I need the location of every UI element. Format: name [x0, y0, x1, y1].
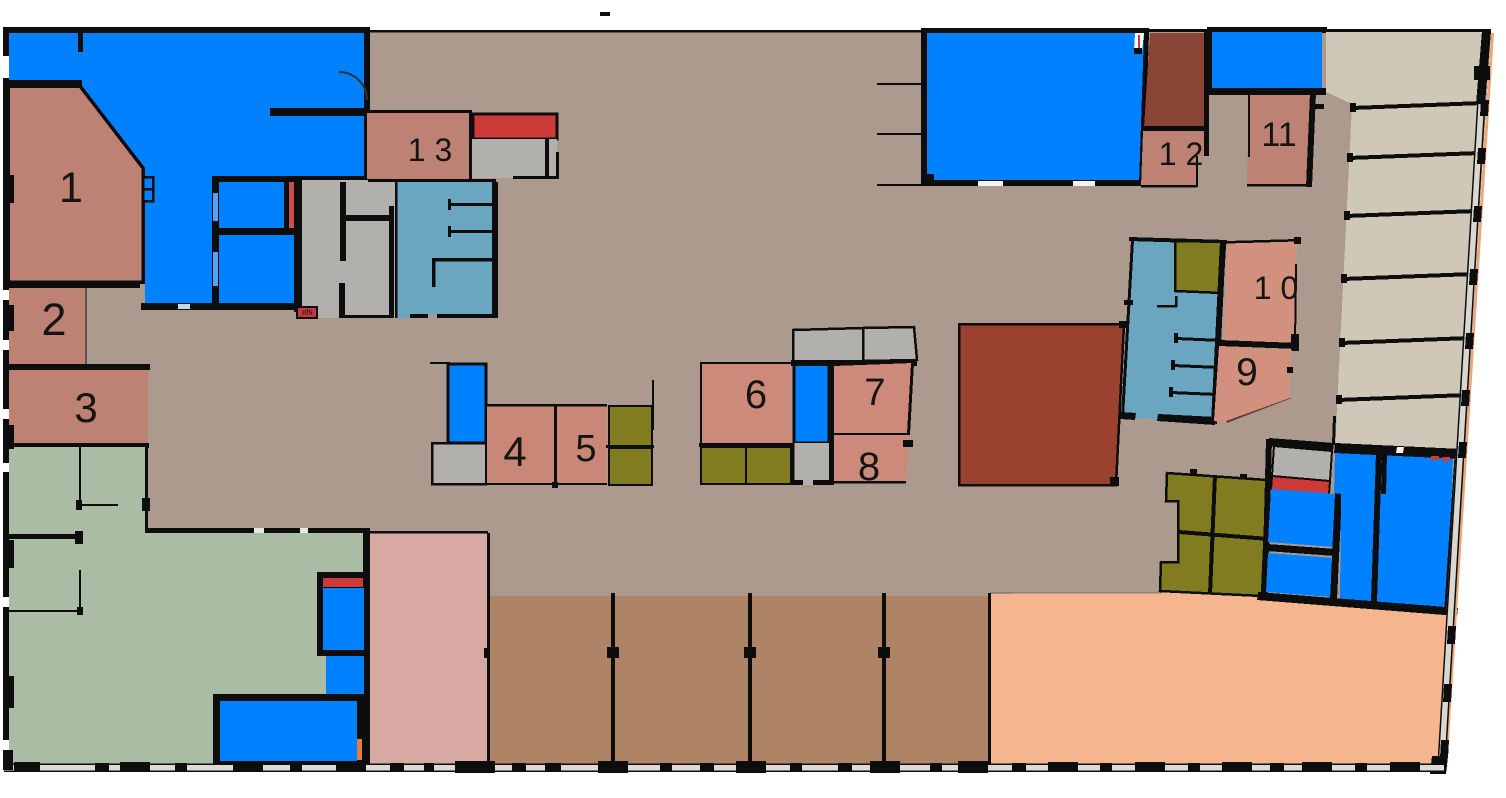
svg-text:1 0: 1 0: [1254, 270, 1298, 306]
svg-text:1: 1: [59, 164, 83, 212]
svg-text:1 3: 1 3: [408, 132, 452, 168]
svg-text:8: 8: [858, 445, 880, 489]
svg-text:11: 11: [1261, 116, 1296, 154]
svg-text:3: 3: [74, 384, 97, 431]
svg-text:spr: spr: [301, 308, 312, 317]
svg-text:4: 4: [503, 428, 526, 475]
svg-text:2: 2: [41, 294, 66, 345]
svg-text:6: 6: [745, 373, 767, 417]
svg-text:7: 7: [864, 372, 885, 414]
svg-text:1 2: 1 2: [1159, 136, 1203, 172]
svg-text:9: 9: [1236, 351, 1258, 394]
svg-text:5: 5: [575, 428, 596, 470]
